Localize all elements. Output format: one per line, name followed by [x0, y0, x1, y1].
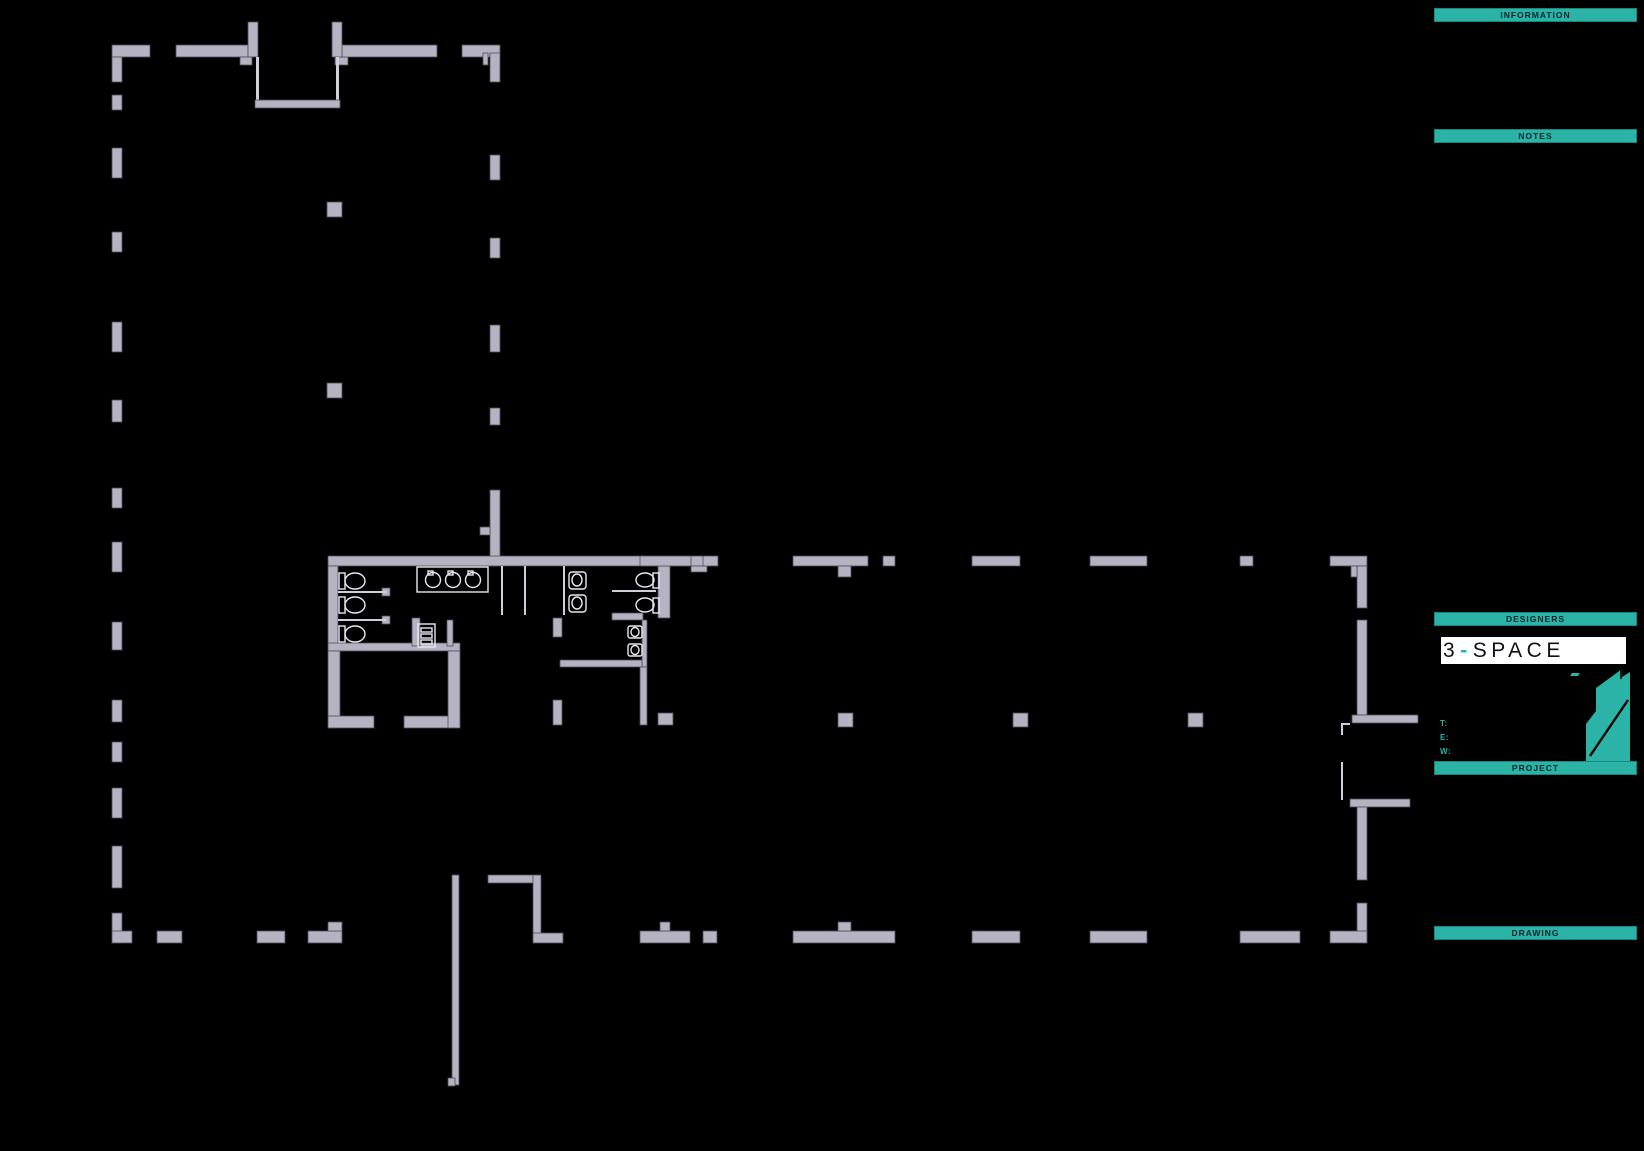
urinal-icon [569, 572, 586, 589]
information-header-label: INFORMATION [1500, 11, 1570, 20]
contact-web-label: W: [1440, 748, 1451, 756]
contact-email-label: E: [1440, 734, 1449, 742]
logo-dash: - [1460, 640, 1472, 661]
designers-header: DESIGNERS [1434, 612, 1637, 626]
drawing-header-label: DRAWING [1511, 929, 1559, 938]
project-header-label: PROJECT [1512, 764, 1559, 773]
designers-header-label: DESIGNERS [1506, 615, 1565, 624]
thin-partitions [338, 566, 1350, 800]
drawing-header: DRAWING [1434, 926, 1637, 940]
left-wing-walls [112, 22, 500, 943]
project-header: PROJECT [1434, 761, 1637, 775]
urinal-icon [569, 595, 586, 612]
building-logo-glyph [1586, 669, 1630, 762]
water-heater-icon [418, 624, 435, 647]
contact-telephone-label: T: [1440, 720, 1448, 728]
urinal-icon [628, 644, 642, 656]
logo-text-space: SPACE [1473, 640, 1565, 661]
toilet-icon [636, 598, 659, 613]
information-header: INFORMATION [1434, 8, 1637, 22]
logo-text-3: 3 [1443, 640, 1459, 661]
urinal-icon [628, 626, 642, 638]
toilet-icon [636, 573, 659, 588]
designer-logo: 3 - SPACE [1441, 637, 1626, 664]
restroom-core-walls [328, 556, 707, 728]
toilet-icon [339, 626, 365, 642]
floor-plan [0, 0, 1644, 1151]
right-wing-walls [640, 556, 1418, 943]
south-corridor-walls [448, 875, 563, 1086]
drawing-sheet: INFORMATION NOTES DESIGNERS 3 - SPACE T:… [0, 0, 1644, 1151]
notes-header-label: NOTES [1518, 132, 1552, 141]
entry-recess [255, 57, 340, 108]
notes-header: NOTES [1434, 129, 1637, 143]
sink-counter [417, 567, 488, 592]
logo-accent-mark [1570, 673, 1579, 676]
toilet-icon [339, 597, 365, 613]
toilet-icon [339, 573, 365, 589]
